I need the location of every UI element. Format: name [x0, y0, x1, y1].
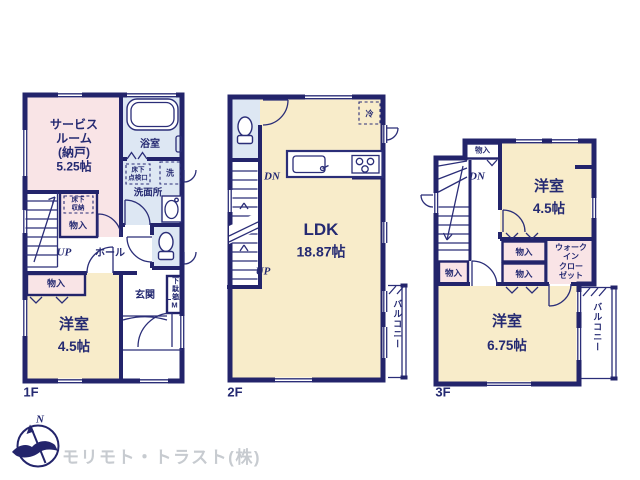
label-3f-bedroom1-name: 洋室: [534, 178, 564, 196]
label-2f-dn: DN: [264, 171, 280, 184]
label-1f-entrance: 玄関: [135, 290, 155, 302]
label-3f-storage-top: 物入: [475, 147, 490, 156]
floor-1f-room-fills: [25, 95, 182, 381]
label-1f-bedroom-size: 4.5帖: [58, 339, 90, 355]
label-1f-washroom: 洗面所: [134, 187, 163, 198]
label-1f-floor-storage: 床下 収納: [72, 196, 85, 211]
label-1f-shoe-cabinet-m: M: [171, 302, 177, 311]
label-compass-north: N: [36, 414, 44, 427]
sink-icon: [162, 196, 182, 222]
label-3f-balcony: バルコニー: [592, 302, 603, 352]
label-2f-ldk-name: LDK: [304, 220, 339, 240]
label-2f-balcony: バルコニー: [392, 299, 403, 349]
label-1f-laundry: 洗: [166, 168, 174, 177]
room-1f-stairs-area: [25, 192, 60, 267]
label-1f-storage-hall: 物入: [69, 221, 87, 232]
room-3f-bedroom2: [436, 286, 579, 384]
label-1f-hall: ホール: [95, 248, 125, 260]
kitchen-counter: [287, 151, 383, 177]
toilet-2f-icon: [238, 117, 253, 144]
floor-1f: [23, 93, 197, 384]
company-watermark: モリモト・トラスト(株): [62, 443, 261, 468]
label-3f-storage-left: 物入: [445, 267, 462, 277]
label-1f-bath: 浴室: [140, 139, 160, 151]
label-floor-1f: 1F: [23, 384, 38, 399]
label-1f-up: UP: [57, 247, 72, 260]
label-floor-2f: 2F: [227, 384, 242, 399]
label-1f-shoe-cabinet: 下駄箱: [170, 277, 178, 301]
label-3f-storage-b: 物入: [515, 269, 532, 279]
label-1f-service-room: サービス ルーム (納戸) 5.25帖: [50, 118, 98, 175]
label-3f-bedroom2-name: 洋室: [492, 313, 522, 331]
north-compass-icon: [12, 425, 59, 467]
entrance-step-lines: [123, 316, 182, 350]
toilet-1f-icon: [159, 233, 174, 260]
floorplan-canvas: サービス ルーム (納戸) 5.25帖 浴室 床下 点検口 洗 洗面所 床下 収…: [0, 0, 640, 480]
label-3f-storage-a: 物入: [515, 246, 532, 256]
label-1f-inspection-hatch: 床下 点検口: [128, 166, 148, 181]
label-2f-up: UP: [256, 266, 271, 279]
label-3f-wic: ウォーク イン クロー ゼット: [555, 243, 587, 281]
label-2f-fridge: 冷: [366, 109, 374, 118]
label-3f-bedroom2-size: 6.75帖: [487, 338, 527, 354]
label-3f-dn: DN: [469, 171, 485, 184]
label-2f-ldk-size: 18.87帖: [296, 244, 345, 261]
label-3f-bedroom1-size: 4.5帖: [533, 201, 565, 217]
label-1f-bedroom-name: 洋室: [59, 316, 89, 334]
label-floor-3f: 3F: [435, 384, 450, 399]
label-1f-storage-bedroom: 物入: [47, 279, 65, 290]
